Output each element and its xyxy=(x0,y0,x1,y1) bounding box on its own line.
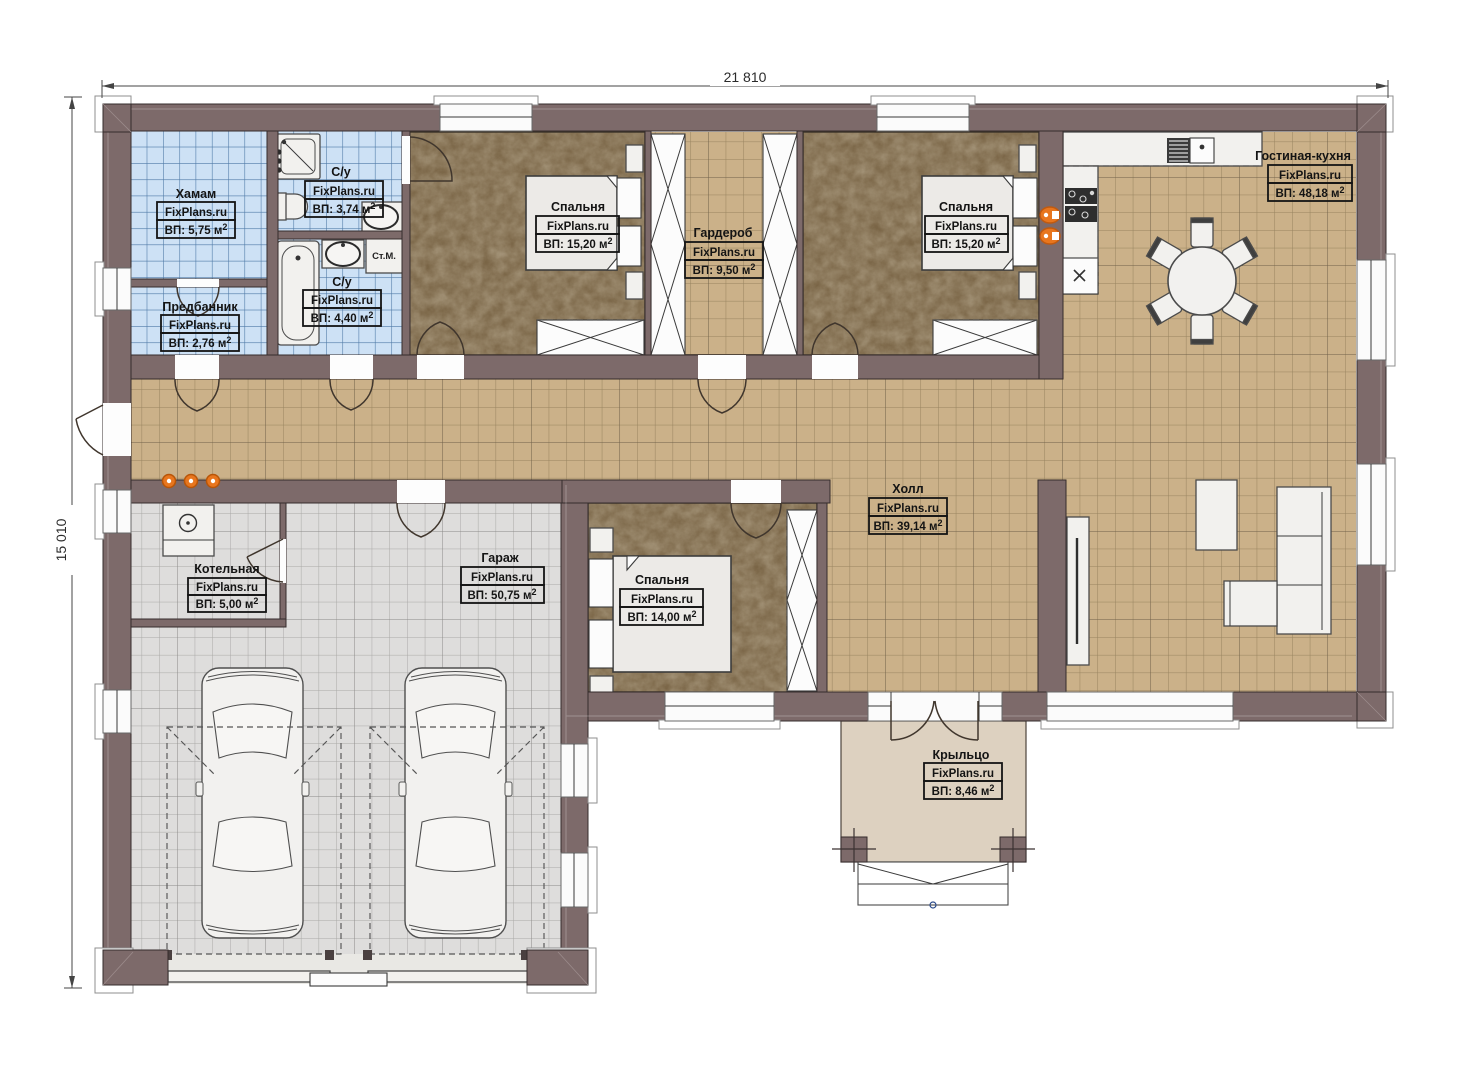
svg-text:15 010: 15 010 xyxy=(53,518,69,561)
svg-text:FixPlans.ru: FixPlans.ru xyxy=(693,247,755,259)
svg-text:Гараж: Гараж xyxy=(481,551,518,565)
svg-text:Хамам: Хамам xyxy=(176,187,217,201)
svg-text:FixPlans.ru: FixPlans.ru xyxy=(165,207,227,219)
svg-text:ВП: 9,50 м2: ВП: 9,50 м2 xyxy=(693,262,756,277)
svg-text:Спальня: Спальня xyxy=(635,573,689,587)
svg-text:FixPlans.ru: FixPlans.ru xyxy=(1279,170,1341,182)
svg-text:Ст.М.: Ст.М. xyxy=(372,251,396,262)
svg-text:ВП: 2,76 м2: ВП: 2,76 м2 xyxy=(169,335,232,350)
svg-text:Холл: Холл xyxy=(892,482,923,496)
svg-text:Крыльцо: Крыльцо xyxy=(933,748,990,762)
svg-text:FixPlans.ru: FixPlans.ru xyxy=(935,221,997,233)
svg-text:21 810: 21 810 xyxy=(724,69,767,85)
svg-text:FixPlans.ru: FixPlans.ru xyxy=(471,572,533,584)
svg-text:ВП: 48,18 м2: ВП: 48,18 м2 xyxy=(1275,185,1344,200)
svg-text:ВП: 5,00 м2: ВП: 5,00 м2 xyxy=(196,596,259,611)
svg-text:Спальня: Спальня xyxy=(551,200,605,214)
svg-text:ВП: 39,14 м2: ВП: 39,14 м2 xyxy=(873,518,942,533)
svg-text:ВП: 8,46 м2: ВП: 8,46 м2 xyxy=(932,783,995,798)
svg-text:ВП: 4,40 м2: ВП: 4,40 м2 xyxy=(311,310,374,325)
svg-text:С/у: С/у xyxy=(332,275,352,289)
svg-text:Предбанник: Предбанник xyxy=(162,300,238,314)
svg-text:FixPlans.ru: FixPlans.ru xyxy=(547,221,609,233)
svg-text:Котельная: Котельная xyxy=(194,562,259,576)
svg-text:ВП: 3,74 м2: ВП: 3,74 м2 xyxy=(313,201,376,216)
svg-text:Гостиная-кухня: Гостиная-кухня xyxy=(1255,149,1351,163)
svg-text:FixPlans.ru: FixPlans.ru xyxy=(311,295,373,307)
svg-text:FixPlans.ru: FixPlans.ru xyxy=(196,582,258,594)
svg-text:FixPlans.ru: FixPlans.ru xyxy=(932,768,994,780)
svg-text:С/у: С/у xyxy=(331,165,351,179)
svg-text:Спальня: Спальня xyxy=(939,200,993,214)
svg-text:Гардероб: Гардероб xyxy=(693,226,752,240)
svg-text:ВП: 50,75 м2: ВП: 50,75 м2 xyxy=(467,587,536,602)
svg-text:FixPlans.ru: FixPlans.ru xyxy=(631,594,693,606)
svg-text:ВП: 15,20 м2: ВП: 15,20 м2 xyxy=(931,236,1000,251)
svg-text:ВП: 5,75 м2: ВП: 5,75 м2 xyxy=(165,222,228,237)
svg-text:ВП: 15,20 м2: ВП: 15,20 м2 xyxy=(543,236,612,251)
svg-text:ВП: 14,00 м2: ВП: 14,00 м2 xyxy=(627,609,696,624)
svg-text:FixPlans.ru: FixPlans.ru xyxy=(169,320,231,332)
svg-text:FixPlans.ru: FixPlans.ru xyxy=(877,503,939,515)
svg-text:FixPlans.ru: FixPlans.ru xyxy=(313,186,375,198)
